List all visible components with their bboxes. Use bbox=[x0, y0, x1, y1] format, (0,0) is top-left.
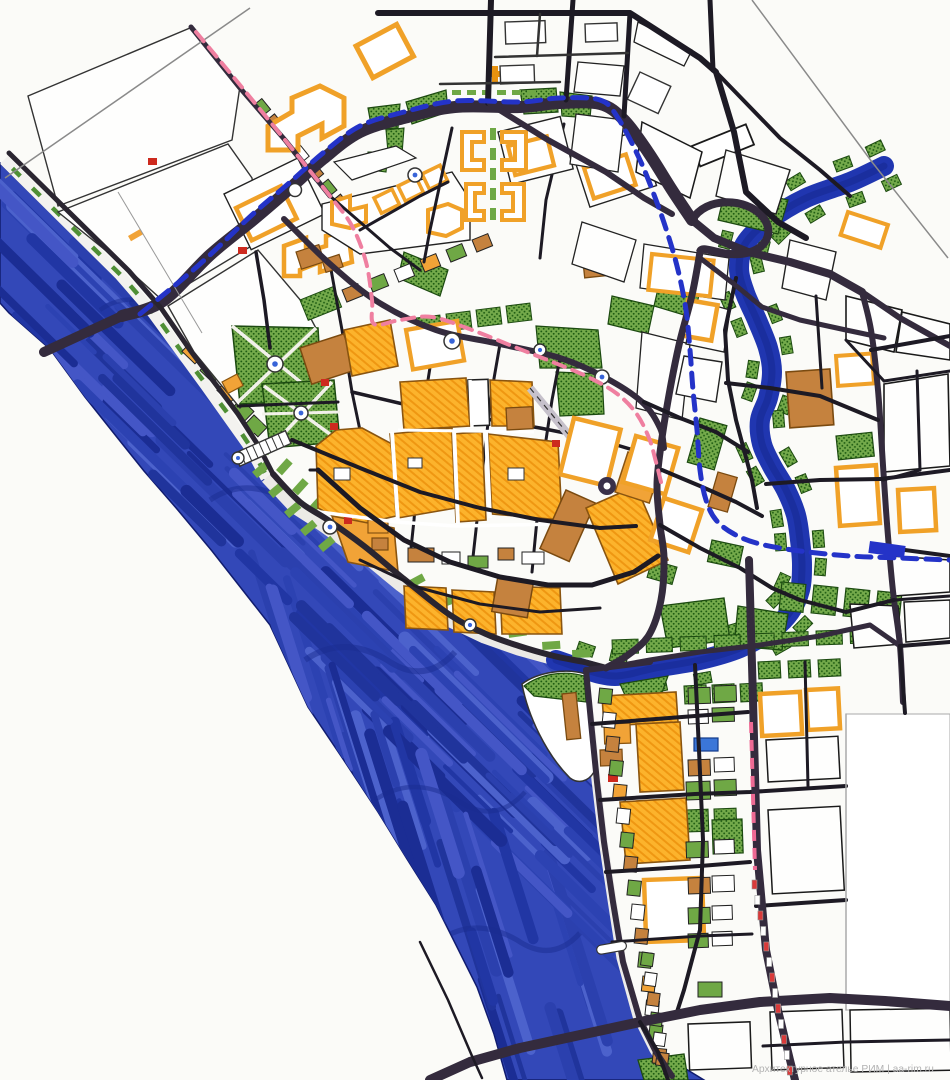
svg-text:Архитектурное ателье РИМ | aa-: Архитектурное ателье РИМ | aa-rim.ru bbox=[752, 1064, 934, 1075]
